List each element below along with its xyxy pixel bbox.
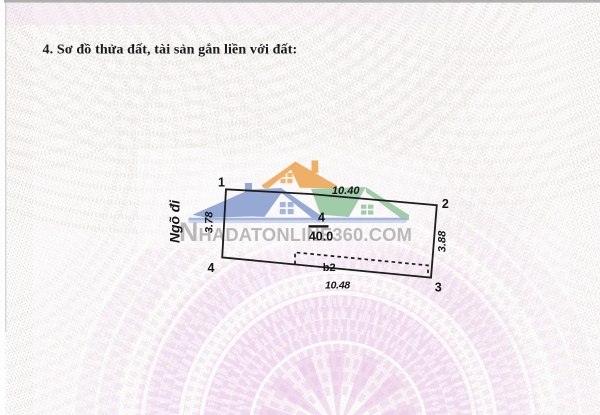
svg-text:3.78: 3.78 [204,211,216,233]
svg-text:10.48: 10.48 [325,281,350,292]
svg-text:3: 3 [435,281,442,295]
svg-text:b2: b2 [323,262,336,274]
svg-text:4: 4 [318,211,325,225]
svg-text:40.0: 40.0 [309,230,333,244]
svg-text:3.88: 3.88 [437,230,449,252]
svg-text:10.40: 10.40 [332,185,360,197]
svg-text:2: 2 [442,197,449,211]
svg-text:4. Sơ đồ thửa đất, tài sản gắn: 4. Sơ đồ thửa đất, tài sản gắn liền với … [43,42,298,58]
svg-text:Ngõ đi: Ngõ đi [167,199,182,243]
svg-text:1: 1 [218,176,225,190]
svg-text:4: 4 [208,261,215,275]
